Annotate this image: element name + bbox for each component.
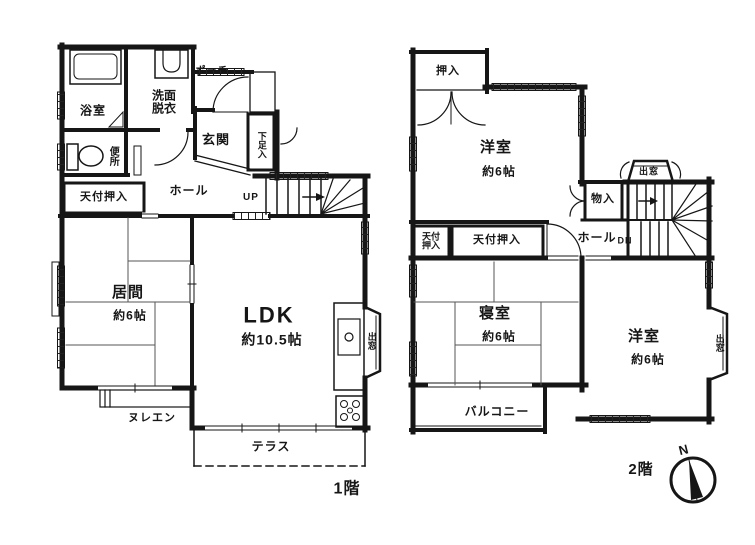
floor1-tatami-lines xyxy=(66,218,190,385)
label-porch: ポーチ xyxy=(196,67,229,78)
floor-plan-page: ポーチ 浴室 洗面脱衣 便所 玄関 下足入 天付押入 ホール UP 居間 約6帖… xyxy=(0,0,755,545)
label-stairs-up: UP xyxy=(243,193,259,204)
label-open-veranda: ヌレエン xyxy=(128,413,176,425)
label-bedroom-size: 約6帖 xyxy=(482,331,516,344)
label-shoe-cabinet: 下足入 xyxy=(256,132,265,159)
kitchen-sink-icon xyxy=(334,303,364,390)
floor2-plan xyxy=(410,50,728,432)
label-bay-window-top: 出窓 xyxy=(639,167,659,176)
label-living: 居間 xyxy=(112,285,144,301)
floor1-porch-alcove xyxy=(250,72,275,112)
label-storage: 物入 xyxy=(591,194,615,206)
compass-needle xyxy=(689,460,703,500)
label-ceiling-closet-f1: 天付押入 xyxy=(80,192,128,204)
washbasin-icon xyxy=(155,50,188,78)
floor1-veranda xyxy=(100,390,192,407)
floor2-stairs-arrow xyxy=(650,197,658,205)
label-washroom: 洗面脱衣 xyxy=(150,89,178,114)
label-bay-window-right: 出窓 xyxy=(714,334,723,352)
label-stairs-down: DN xyxy=(618,236,633,245)
label-ceiling-closet-small: 天付押入 xyxy=(421,233,442,252)
label-bath: 浴室 xyxy=(80,105,106,118)
label-ldk-size: 約10.5帖 xyxy=(241,333,302,348)
label-bay-window-f1: 出窓 xyxy=(366,332,375,350)
label-balcony: バルコニー xyxy=(465,406,530,419)
label-entrance: 玄関 xyxy=(202,133,230,147)
floor2-stairs xyxy=(628,184,712,257)
label-west-room-north: 洋室 xyxy=(480,140,512,156)
label-west-room-south-size: 約6帖 xyxy=(631,354,665,367)
label-ldk: LDK xyxy=(243,303,294,326)
label-west-room-north-size: 約6帖 xyxy=(482,166,516,179)
floor2-tatami-lines xyxy=(414,262,578,385)
floor1-inner-walls xyxy=(60,47,368,390)
label-west-room-south: 洋室 xyxy=(628,329,660,345)
toilet-icon xyxy=(67,144,103,170)
label-hall-f2: ホール xyxy=(577,232,616,245)
label-toilet: 便所 xyxy=(107,146,118,166)
floor2-title: 2階 xyxy=(628,462,653,478)
floor1-entrance-step xyxy=(195,155,250,175)
label-bedroom: 寝室 xyxy=(479,306,511,322)
floor1-title: 1階 xyxy=(334,482,361,499)
stove-icon xyxy=(336,396,366,427)
label-terrace: テラス xyxy=(252,441,291,454)
label-closet-f2: 押入 xyxy=(436,66,460,78)
compass xyxy=(671,458,715,502)
floor1-door-arcs xyxy=(109,77,297,175)
label-hall-f1: ホール xyxy=(169,185,208,198)
bathtub-icon xyxy=(70,50,121,84)
label-ceiling-closet-wide: 天付押入 xyxy=(473,235,521,247)
label-living-size: 約6帖 xyxy=(113,310,147,323)
floor1-stairs xyxy=(266,179,365,214)
